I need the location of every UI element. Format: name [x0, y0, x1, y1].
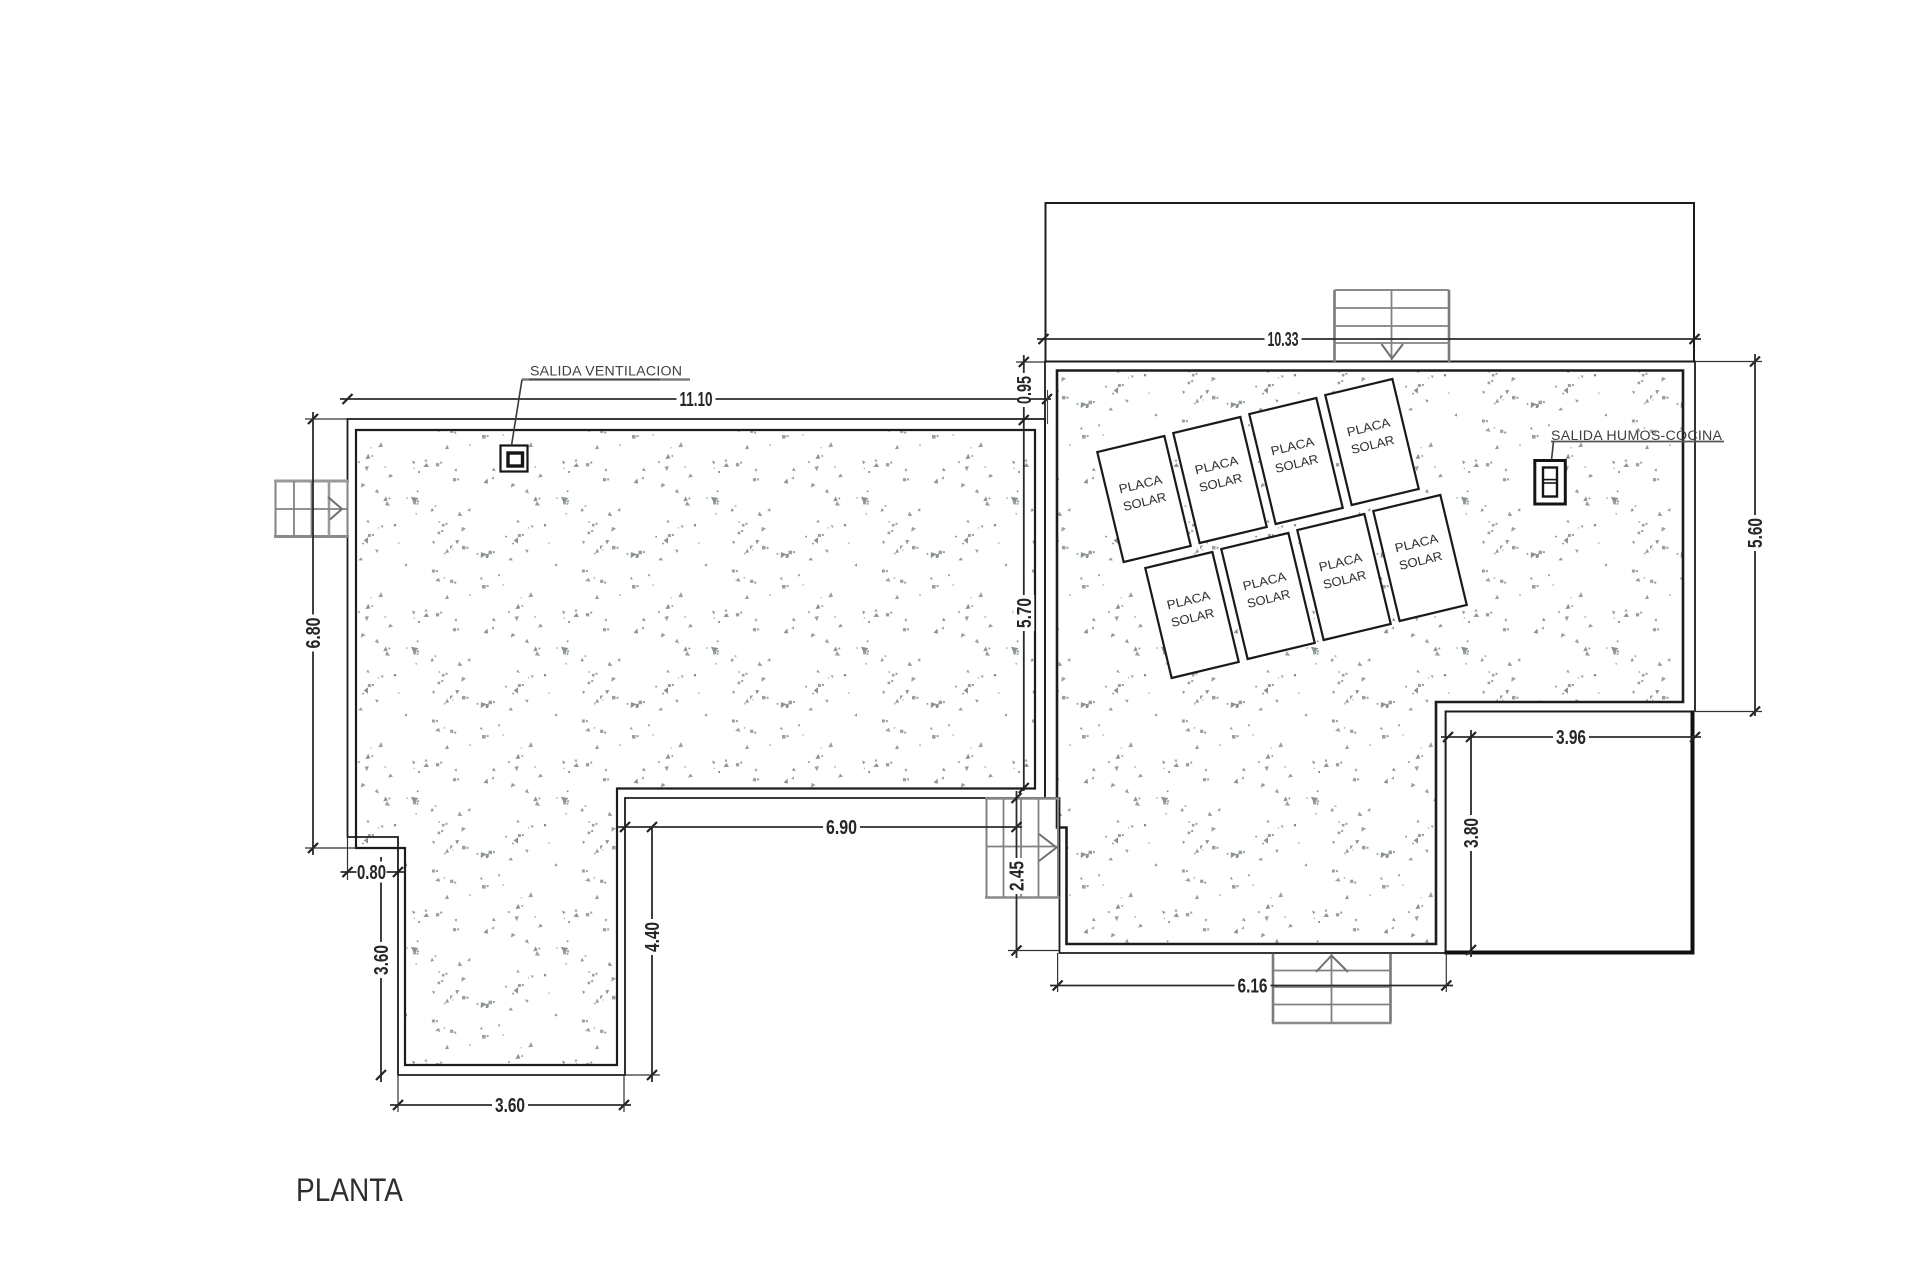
svg-text:6.16: 6.16 — [1238, 976, 1268, 998]
svg-text:4.40: 4.40 — [642, 922, 664, 952]
svg-text:3.96: 3.96 — [1556, 727, 1586, 749]
svg-text:5.70: 5.70 — [1014, 598, 1036, 628]
svg-text:3.80: 3.80 — [1461, 818, 1483, 848]
svg-text:PLANTA: PLANTA — [296, 1172, 404, 1208]
svg-text:3.60: 3.60 — [495, 1095, 525, 1117]
svg-text:0.80: 0.80 — [357, 862, 386, 884]
svg-text:5.60: 5.60 — [1745, 518, 1767, 548]
svg-text:SALIDA VENTILACION: SALIDA VENTILACION — [530, 364, 682, 380]
svg-text:6.80: 6.80 — [303, 618, 325, 649]
svg-text:6.90: 6.90 — [826, 817, 857, 839]
svg-text:11.10: 11.10 — [680, 389, 713, 411]
svg-text:2.45: 2.45 — [1007, 861, 1029, 891]
svg-text:10.33: 10.33 — [1268, 329, 1299, 351]
svg-text:0.95: 0.95 — [1014, 376, 1036, 404]
svg-text:3.60: 3.60 — [371, 945, 393, 975]
